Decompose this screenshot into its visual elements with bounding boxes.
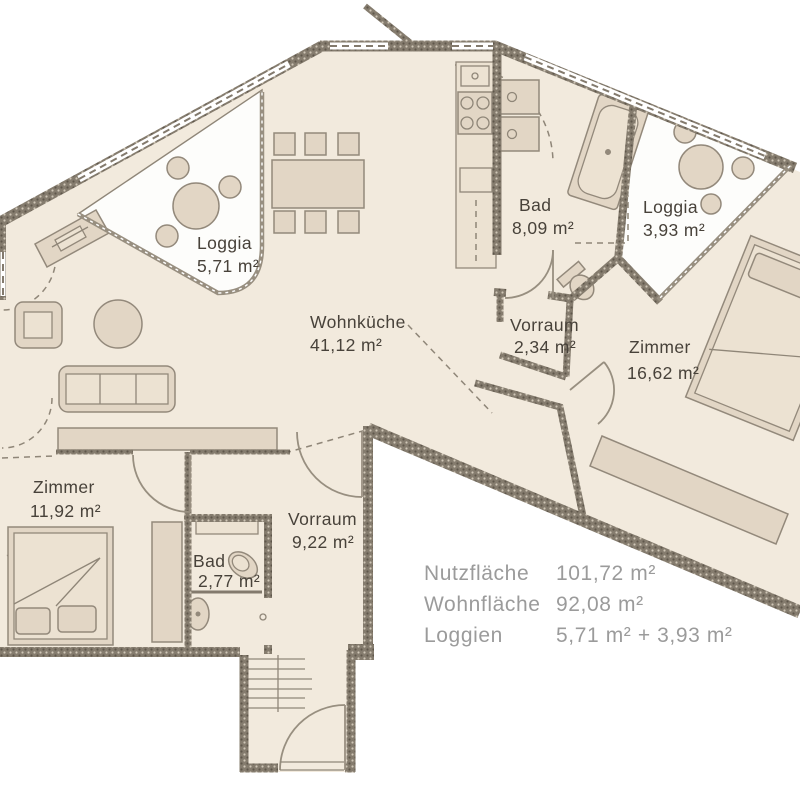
round-side-table	[94, 300, 142, 348]
dining-table-set	[272, 133, 364, 233]
armchair	[15, 302, 62, 348]
legend-label-loggien: Loggien	[424, 624, 503, 647]
legend-value-wohnflaeche: 92,08 m²	[556, 593, 644, 616]
room-label-zimmer-ost-area: 16,62 m²	[627, 363, 699, 383]
room-label-loggia-ost-area: 3,93 m²	[643, 220, 705, 240]
room-label-wohnkueche-area: 41,12 m²	[310, 335, 382, 355]
legend-value-nutzflaeche: 101,72 m²	[556, 562, 656, 585]
room-label-loggia-west-area: 5,71 m²	[197, 256, 259, 276]
room-label-loggia-west-name: Loggia	[197, 233, 252, 253]
sofa	[59, 366, 175, 412]
legend-label-nutzflaeche: Nutzfläche	[424, 562, 529, 585]
legend-value-loggien: 5,71 m² + 3,93 m²	[556, 624, 733, 647]
floor-plan-svg: Loggia 5,71 m² Wohnküche 41,12 m² Bad 8,…	[0, 0, 800, 800]
room-label-bad-gross-area: 8,09 m²	[512, 218, 574, 238]
legend-label-wohnflaeche: Wohnfläche	[424, 593, 541, 616]
room-label-zimmer-west-area: 11,92 m²	[30, 501, 101, 521]
kitchen-counter	[456, 62, 496, 268]
bed-west	[8, 527, 113, 645]
room-label-zimmer-ost-name: Zimmer	[629, 337, 691, 357]
room-label-vorraum-klein-area: 2,34 m²	[514, 337, 576, 357]
upper-stub-wall	[365, 6, 412, 44]
area-legend: Nutzfläche 101,72 m² Wohnfläche 92,08 m²…	[424, 562, 733, 647]
room-label-bad-klein-area: 2,77 m²	[198, 571, 260, 591]
room-label-wohnkueche-name: Wohnküche	[310, 312, 406, 332]
floorplan-page: Loggia 5,71 m² Wohnküche 41,12 m² Bad 8,…	[0, 0, 800, 800]
room-label-vorraum-gross-name: Vorraum	[288, 509, 357, 529]
room-label-bad-klein-name: Bad	[193, 551, 225, 571]
room-label-bad-gross-name: Bad	[519, 195, 551, 215]
room-label-vorraum-klein-name: Vorraum	[510, 315, 579, 335]
room-label-vorraum-gross-area: 9,22 m²	[292, 532, 354, 552]
room-label-zimmer-west-name: Zimmer	[33, 477, 95, 497]
sideboard	[58, 428, 277, 450]
bath-shelf-niche	[196, 520, 258, 534]
wardrobe-west	[152, 522, 182, 642]
room-label-loggia-ost-name: Loggia	[643, 197, 698, 217]
pillow	[16, 608, 50, 634]
pillow	[58, 606, 96, 632]
